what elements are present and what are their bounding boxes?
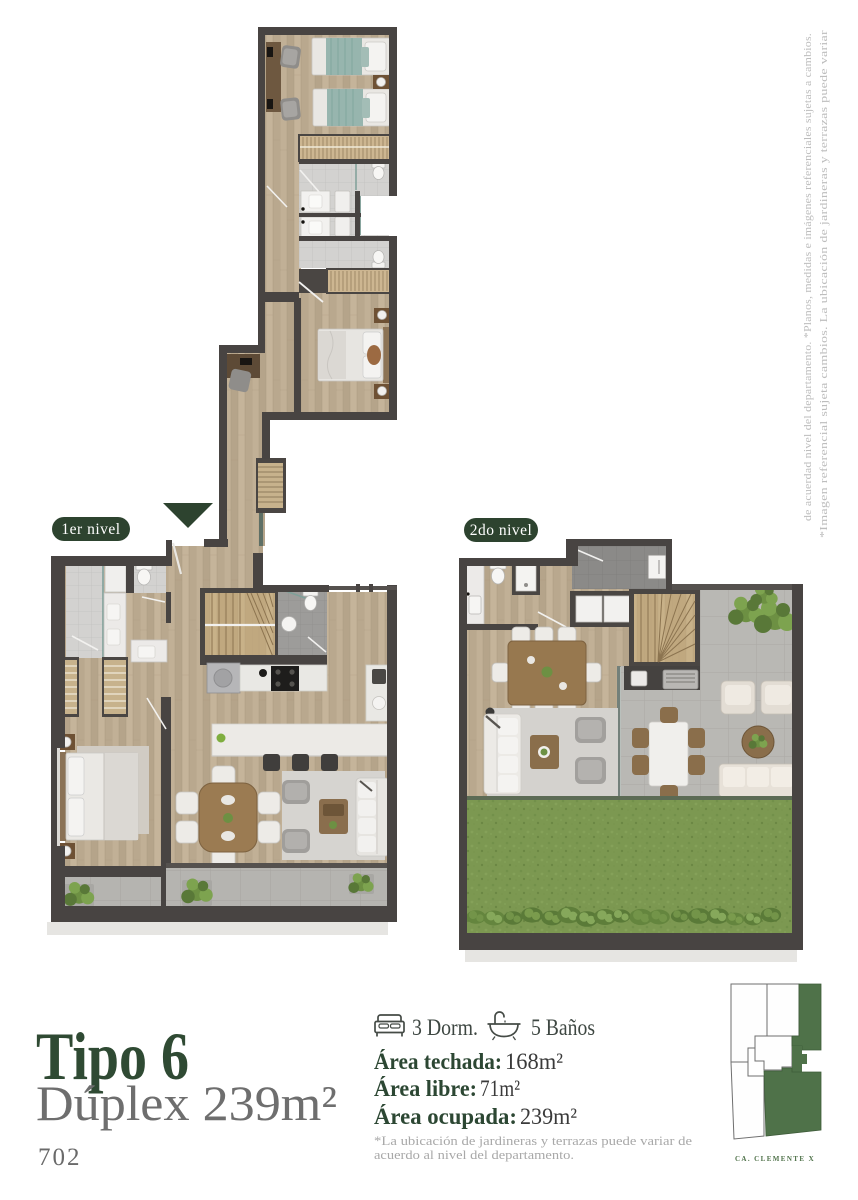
svg-text:Área libre:71m²: Área libre:71m² bbox=[374, 1076, 520, 1101]
svg-text:acuerdo al nivel del departame: acuerdo al nivel del departamento. bbox=[374, 1148, 574, 1162]
svg-text:Dúplex 239m²: Dúplex 239m² bbox=[36, 1075, 337, 1131]
svg-text:de acuerdad nivel del departam: de acuerdad nivel del departamento. *Pla… bbox=[803, 33, 814, 521]
svg-text:5 Baños: 5 Baños bbox=[531, 1015, 595, 1040]
svg-text:702: 702 bbox=[38, 1144, 82, 1171]
svg-text:2do nivel: 2do nivel bbox=[470, 522, 533, 539]
svg-text:CA. CLEMENTE X: CA. CLEMENTE X bbox=[735, 1155, 815, 1163]
svg-text:*Imagen referencial sujeta cam: *Imagen referencial sujeta cambios. La u… bbox=[819, 30, 830, 538]
svg-text:Área ocupada:239m²: Área ocupada:239m² bbox=[374, 1104, 577, 1129]
svg-text:Área techada:168m²: Área techada:168m² bbox=[374, 1049, 563, 1074]
svg-text:1er nivel: 1er nivel bbox=[61, 521, 120, 538]
svg-text:*La ubicación de jardineras y: *La ubicación de jardineras y terrazas p… bbox=[374, 1134, 693, 1148]
svg-text:3 Dorm.: 3 Dorm. bbox=[412, 1015, 478, 1040]
